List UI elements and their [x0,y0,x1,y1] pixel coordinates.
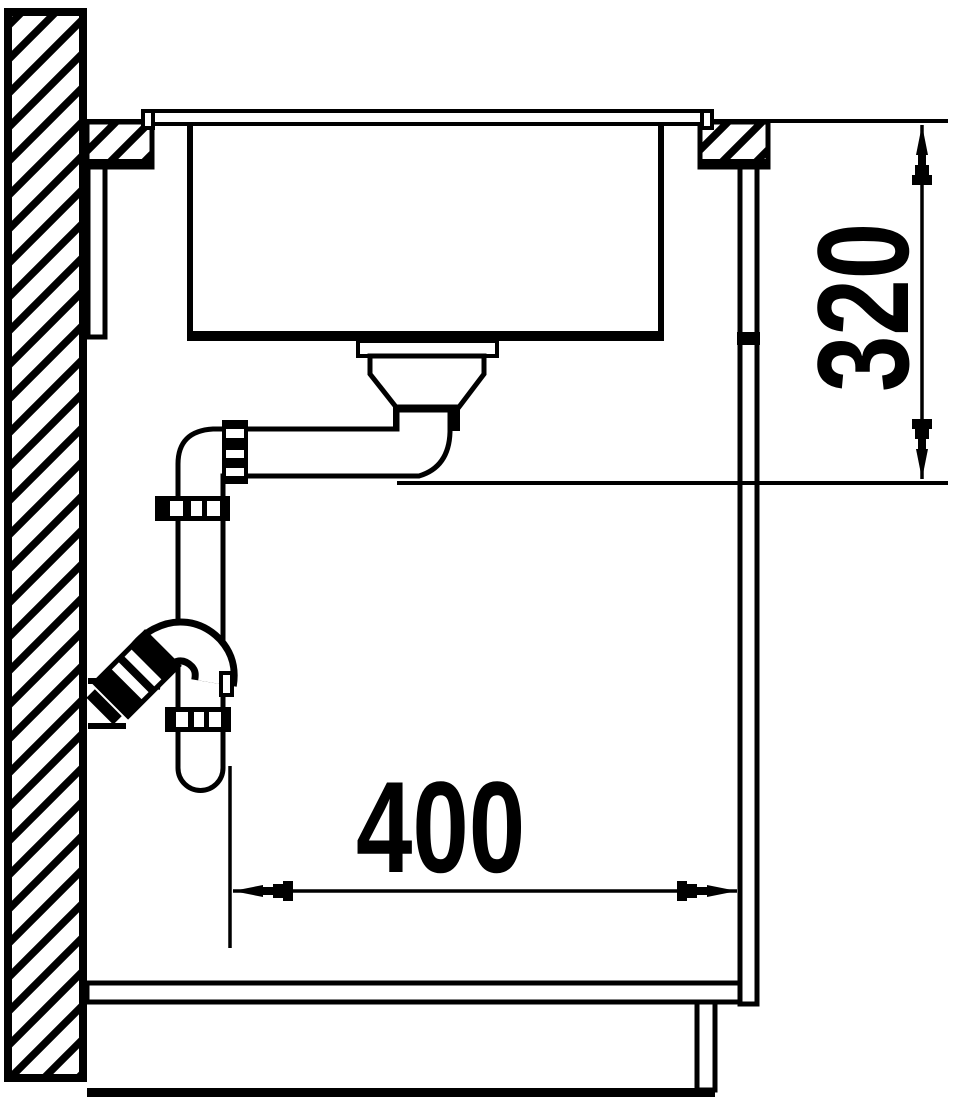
dim-400-label: 400 [356,754,525,900]
sink-flange-right-lip [702,111,712,128]
standpipe-clip-tab [221,673,232,695]
union-slot [191,501,202,516]
union-slot [207,501,220,516]
cabinet-right-panel [740,167,757,1004]
dim-320-extension-bottom [397,481,948,485]
sink-flange-left-lip [143,111,153,128]
sink-section-drawing: 320 400 [0,0,960,1099]
pipe-coupling-horizontal [222,420,248,484]
union-slot [176,712,188,727]
cabinet-bottom-shelf [87,983,740,1002]
sink-flange-slab [143,111,712,124]
cabinet-plinth [697,1002,715,1090]
standpipe-union-upper [155,496,230,521]
cabinet-left-panel [88,167,105,337]
union-slot [194,712,204,727]
coupling-rib [226,468,244,476]
cabinet-panel-joint [737,332,760,345]
technical-drawing-canvas: 320 400 [0,0,960,1099]
drain-funnel-body [370,356,484,407]
coupling-rib [226,429,244,438]
standpipe-union-lower [165,707,231,732]
wall-section [8,12,83,1078]
dim-320-label: 320 [790,223,936,392]
wall-hatch [8,12,83,1078]
sink-flange [143,111,712,128]
union-slot [209,712,221,727]
floor-line [87,1088,715,1097]
coupling-rib [226,450,244,458]
union-slot [170,501,183,516]
